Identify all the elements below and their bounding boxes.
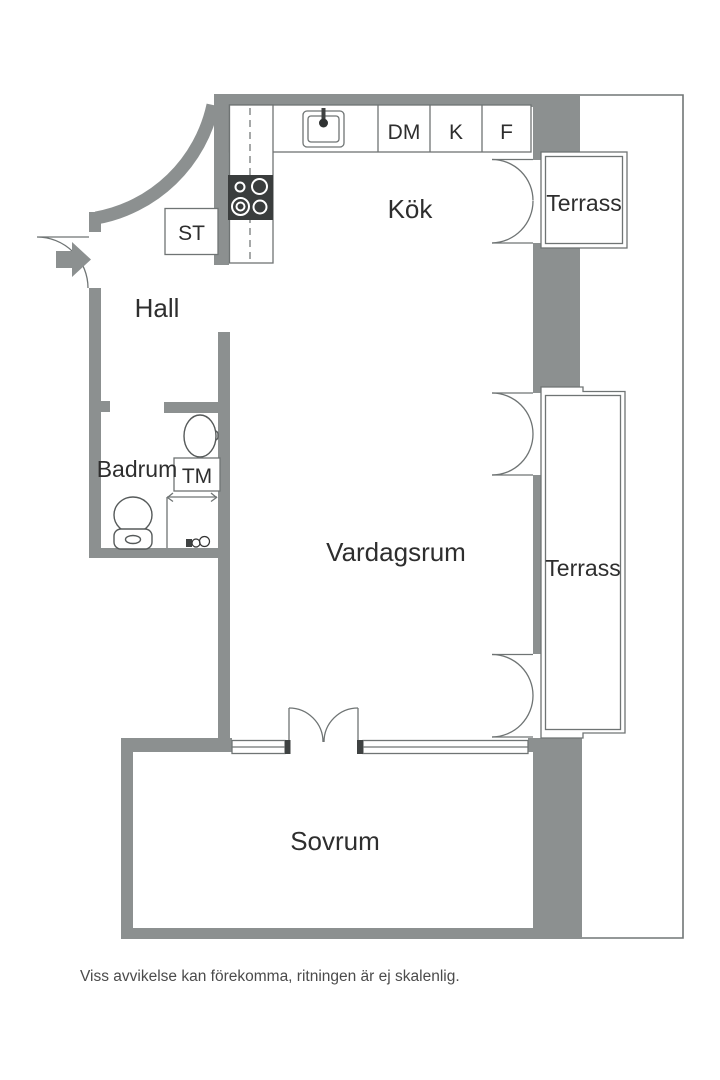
door-leaves [492,393,533,475]
washbasin-icon [184,415,218,457]
wall-right-middle [533,248,580,387]
terrace-right-label: Terrass [545,555,620,581]
wall-right-bedroom [533,738,582,939]
door-swings [289,708,358,742]
shower-icon [167,493,217,548]
wall-bedroom-bottom [121,928,582,939]
bedroom-windows [232,740,528,754]
wall-interior [218,332,230,750]
terrace-top-label: Terrass [546,190,621,216]
stove-icon [228,175,273,220]
shower-mixer-base [186,539,192,547]
wall-right-strip [533,475,541,654]
disclaimer-text: Viss avvikelse kan förekomma, ritningen … [80,968,460,985]
floor-plan: Hall Kök Vardagsrum Sovrum Badrum Terras… [0,0,720,1080]
door-jamb [285,740,291,754]
living-terrace-door-upper [492,393,533,475]
shower-mixer-knob-1 [192,539,200,547]
door-leaves [492,655,533,738]
shower-mixer-knob-2 [200,537,210,547]
bedroom-label: Sovrum [290,826,380,856]
wall-curved [96,105,213,218]
living-terrace-door-lower [492,654,533,737]
kitchen-terrace-door [492,160,533,244]
sink-faucet-stem [322,108,326,120]
wall-left [89,288,101,558]
door-swings [492,393,533,475]
wall-bathroom-bottom [89,548,230,558]
dishwasher-label: DM [388,121,421,144]
wall-bedroom-window-jamb [528,738,533,752]
toilet-flush [126,536,141,544]
door-swings [492,654,533,737]
toilet-bowl [114,497,152,533]
floor-plan-page: Hall Kök Vardagsrum Sovrum Badrum Terras… [0,0,720,1080]
door-leaves [289,708,358,742]
door-swings [492,160,533,244]
washbasin-bowl [184,415,216,457]
doors [37,160,533,743]
door-leaves [492,160,533,244]
kitchen-label: Kök [388,194,434,224]
wall-bedroom-top [121,738,232,752]
fridge-label: K [449,121,463,144]
sink-faucet-knob [319,119,328,128]
washing-machine-label: TM [182,465,212,488]
living-room-label: Vardagsrum [326,537,466,567]
wall-bathroom-door-stub [89,401,110,412]
hall-label: Hall [135,293,180,323]
kitchen-counter-top [230,105,532,152]
wall-right-jamb-3 [533,387,541,393]
wall-right-jamb-1 [533,152,541,160]
closet-label: ST [178,222,205,245]
wall-right-upper [533,94,580,152]
freezer-label: F [500,121,513,144]
wall-right-jamb-2 [533,243,541,248]
bathroom-label: Badrum [97,456,178,482]
walls [89,94,582,939]
door-jamb [357,740,363,754]
entrance-door [37,237,91,288]
bedroom-double-door [289,708,358,742]
wall-bedroom-left [121,738,133,939]
wall-left-top [89,212,101,232]
toilet-icon [114,497,152,549]
